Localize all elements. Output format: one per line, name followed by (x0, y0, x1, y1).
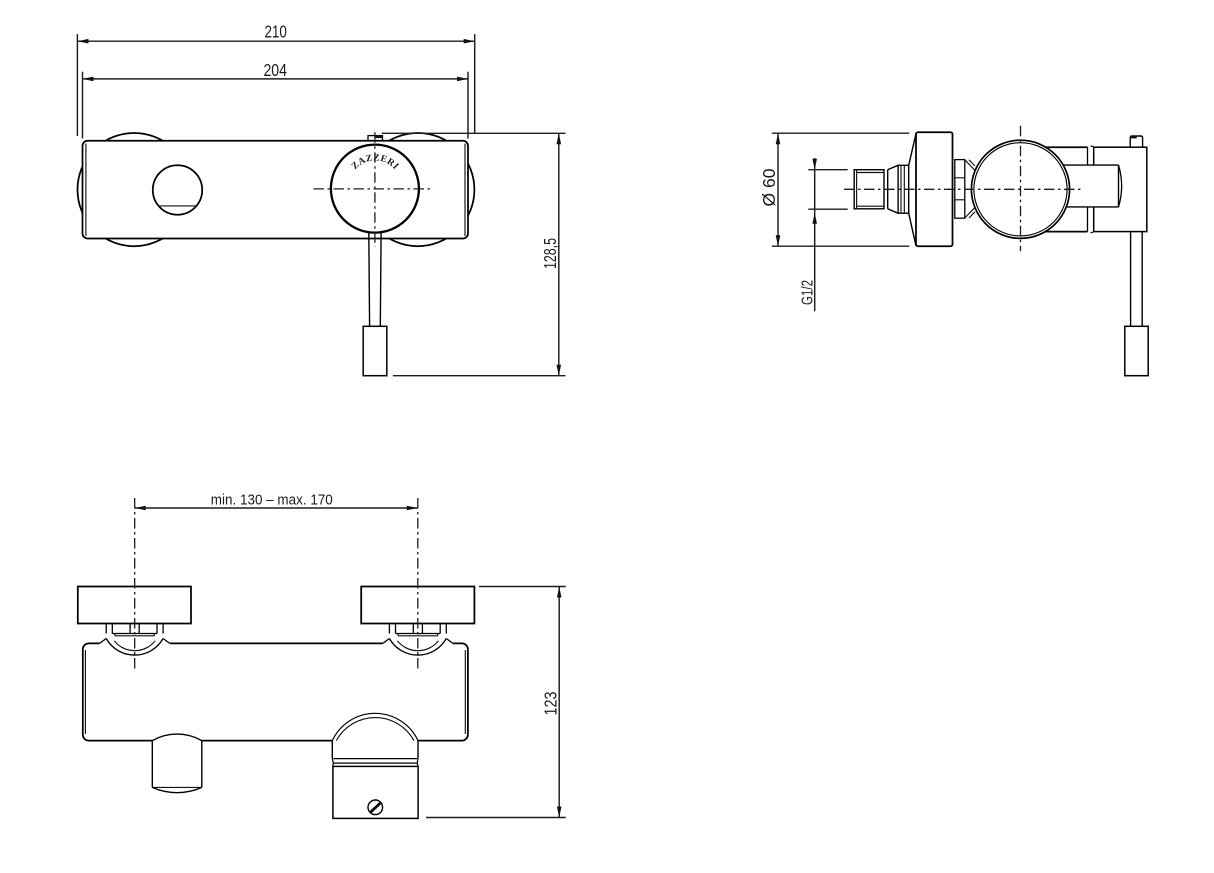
svg-text:210: 210 (264, 21, 287, 41)
svg-text:204: 204 (263, 60, 287, 80)
svg-text:min. 130 – max. 170: min. 130 – max. 170 (211, 492, 333, 508)
svg-text:128,5: 128,5 (540, 238, 560, 269)
svg-text:G1/2: G1/2 (800, 280, 817, 305)
svg-text:123: 123 (541, 692, 561, 716)
svg-text:Ø 60: Ø 60 (759, 169, 779, 207)
